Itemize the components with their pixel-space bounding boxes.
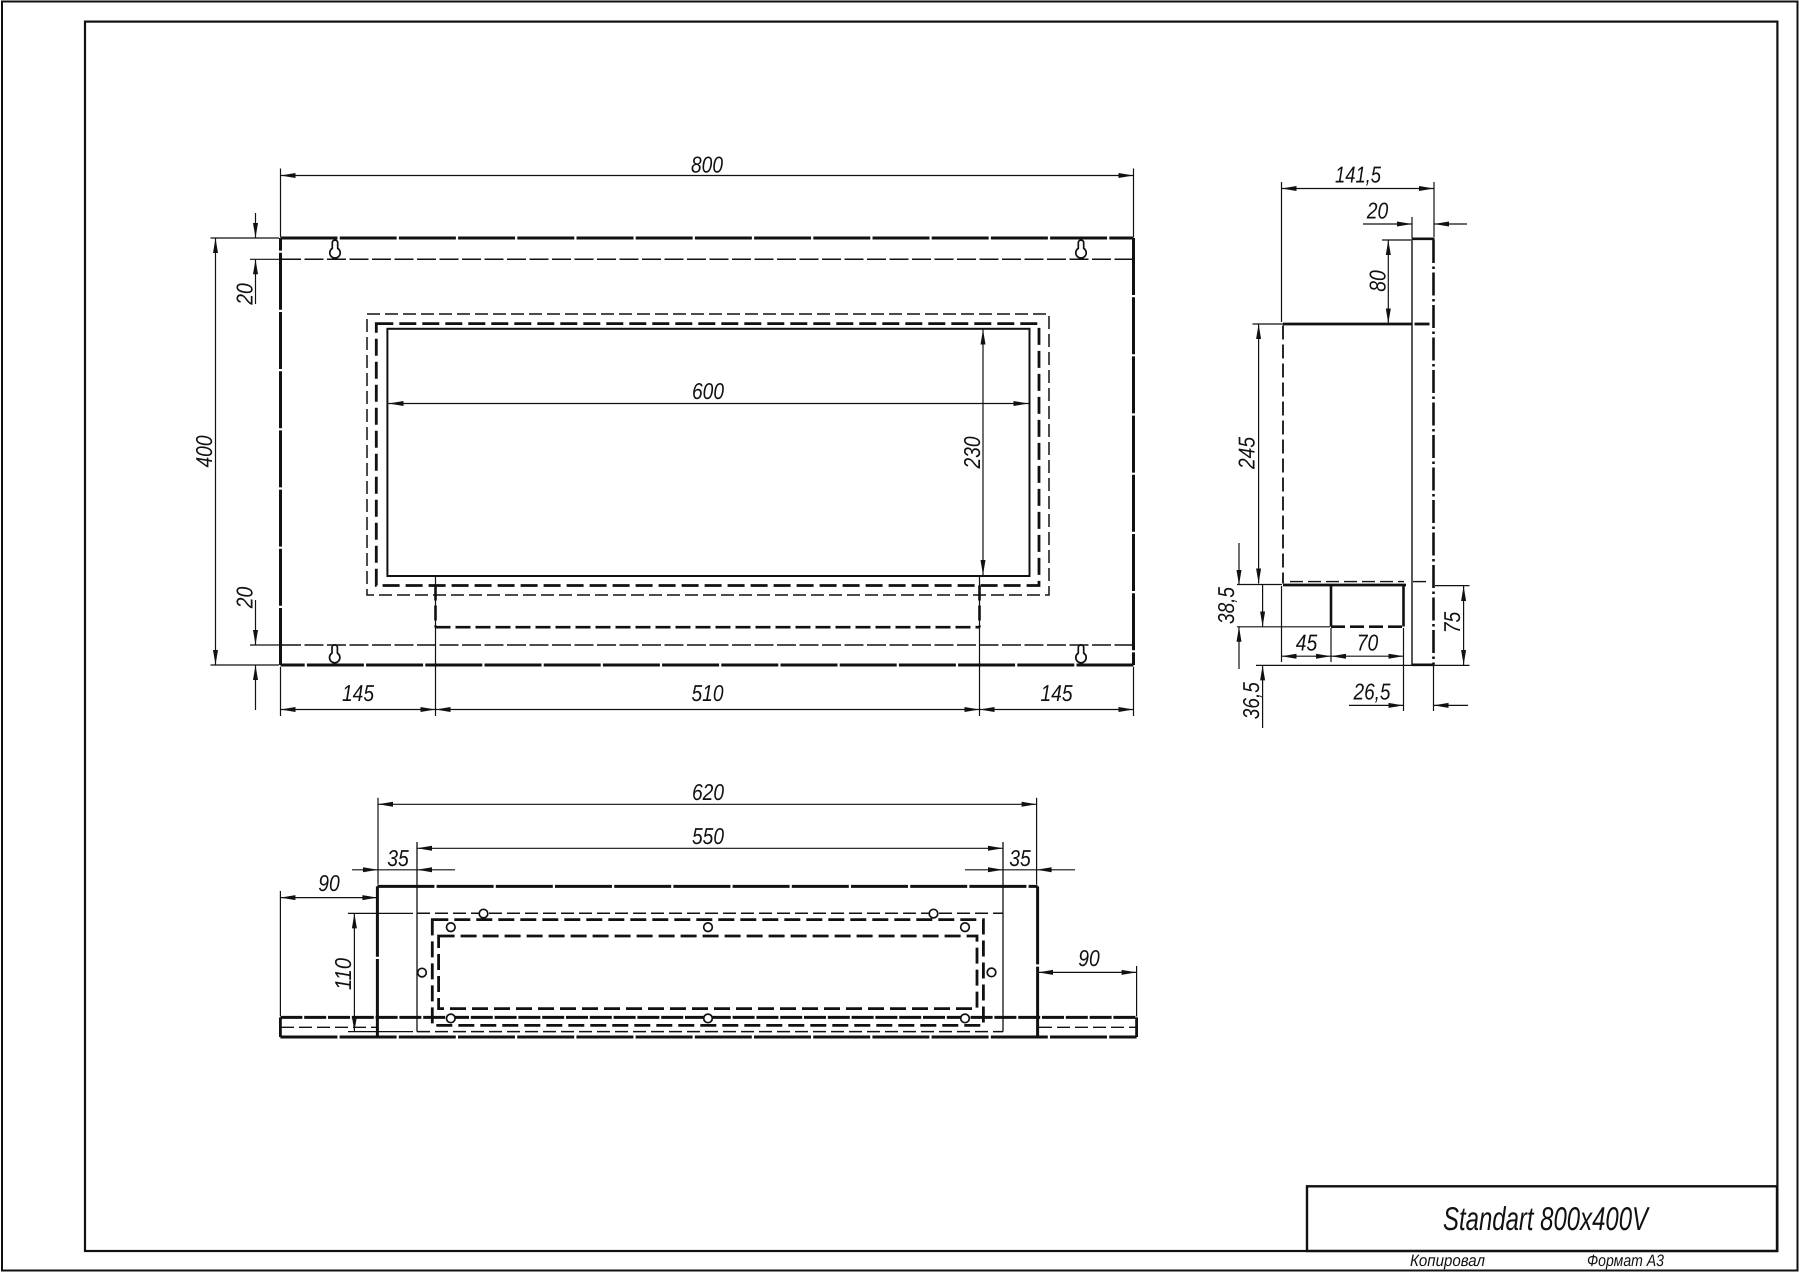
svg-text:Копировал: Копировал (1410, 1252, 1485, 1270)
svg-text:Формат А3: Формат А3 (1587, 1252, 1665, 1270)
svg-text:620: 620 (692, 779, 724, 805)
svg-text:510: 510 (692, 680, 724, 706)
svg-text:20: 20 (1366, 198, 1389, 224)
svg-text:145: 145 (342, 680, 374, 706)
svg-text:400: 400 (191, 435, 217, 467)
svg-text:141,5: 141,5 (1335, 162, 1381, 188)
svg-text:70: 70 (1357, 630, 1379, 656)
svg-text:90: 90 (1078, 945, 1100, 971)
svg-text:80: 80 (1364, 270, 1390, 292)
svg-text:35: 35 (387, 845, 409, 871)
svg-text:36,5: 36,5 (1238, 682, 1264, 719)
svg-text:Standart 800x400V: Standart 800x400V (1443, 1200, 1650, 1237)
svg-text:230: 230 (959, 436, 985, 469)
svg-text:600: 600 (692, 378, 724, 404)
svg-text:26,5: 26,5 (1353, 679, 1391, 705)
svg-text:75: 75 (1439, 612, 1465, 634)
svg-text:45: 45 (1296, 630, 1318, 656)
svg-text:110: 110 (330, 958, 356, 990)
svg-text:800: 800 (691, 152, 723, 178)
svg-text:20: 20 (232, 587, 258, 610)
svg-text:145: 145 (1041, 680, 1073, 706)
svg-text:20: 20 (232, 283, 258, 306)
svg-text:550: 550 (692, 823, 724, 849)
svg-text:35: 35 (1009, 845, 1031, 871)
svg-text:38,5: 38,5 (1213, 587, 1239, 624)
svg-text:90: 90 (318, 870, 340, 896)
svg-text:245: 245 (1234, 437, 1260, 470)
